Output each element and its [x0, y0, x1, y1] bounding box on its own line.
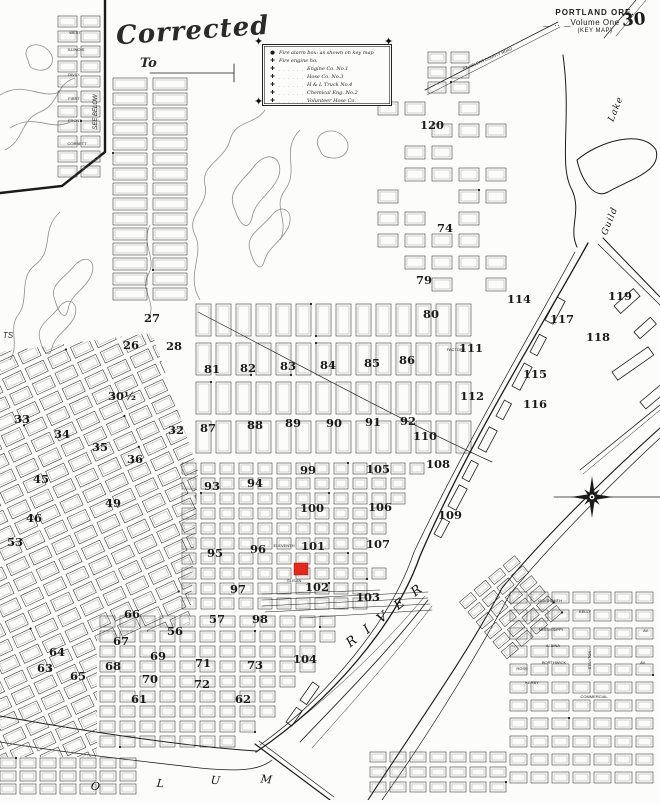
- city-block: [428, 52, 446, 63]
- city-block: [17, 758, 40, 777]
- city-block: [88, 612, 111, 631]
- city-block: [531, 664, 548, 675]
- city-block-inner: [222, 510, 232, 517]
- city-block: [229, 265, 252, 284]
- city-block: [148, 565, 171, 584]
- city-block-inner: [298, 525, 308, 532]
- district-number-34: 34: [54, 427, 70, 441]
- city-block: [251, 311, 274, 330]
- city-block-inner: [294, 520, 312, 534]
- city-block-inner: [0, 657, 17, 671]
- city-block: [451, 82, 469, 93]
- city-block-inner: [115, 125, 145, 133]
- city-block: [552, 736, 569, 747]
- city-block-inner: [41, 450, 59, 464]
- city-block-inner: [155, 170, 185, 178]
- city-block-inner: [231, 324, 249, 338]
- city-block-inner: [182, 648, 193, 655]
- city-block-inner: [336, 510, 346, 517]
- city-block: [276, 382, 291, 414]
- fire-alarm-box-dot: [137, 445, 140, 448]
- city-block: [233, 451, 256, 470]
- city-block: [280, 676, 295, 687]
- city-block: [470, 767, 486, 777]
- city-block-inner: [22, 786, 34, 792]
- city-block-inner: [279, 555, 289, 562]
- city-block: [296, 304, 311, 336]
- city-block: [160, 721, 175, 732]
- city-block-inner: [222, 555, 232, 562]
- city-block-inner: [53, 595, 71, 609]
- city-block-inner: [378, 306, 389, 334]
- city-block: [93, 328, 116, 347]
- city-block-inner: [122, 663, 133, 670]
- city-block: [216, 304, 231, 336]
- city-block-inner: [418, 384, 429, 412]
- city-block-inner: [151, 568, 169, 582]
- city-block-inner: [162, 708, 173, 715]
- city-block: [636, 592, 653, 603]
- city-block: [120, 661, 135, 672]
- city-block: [594, 646, 611, 657]
- city-block-inner: [617, 774, 630, 781]
- city-block: [220, 736, 235, 747]
- city-block: [206, 688, 229, 707]
- city-block-inner: [262, 708, 273, 715]
- city-block-inner: [4, 430, 22, 444]
- city-block-inner: [115, 260, 145, 268]
- city-block-inner: [185, 346, 203, 360]
- city-block-inner: [317, 480, 327, 487]
- fire-alarm-box-dot: [254, 731, 256, 733]
- city-block: [552, 754, 569, 765]
- city-block: [470, 782, 486, 792]
- city-block-inner: [148, 325, 166, 339]
- city-block-inner: [575, 756, 588, 763]
- city-block-inner: [220, 479, 238, 493]
- city-block: [376, 304, 391, 336]
- city-block-inner: [70, 512, 88, 526]
- city-block-inner: [322, 638, 340, 652]
- city-block: [120, 771, 136, 781]
- city-block: [63, 324, 86, 343]
- city-block: [100, 344, 123, 363]
- city-block: [370, 752, 386, 762]
- district-number-118: 118: [586, 330, 610, 344]
- city-block-inner: [256, 556, 274, 570]
- city-block-inner: [55, 481, 73, 495]
- city-block: [200, 706, 215, 717]
- city-block-inner: [380, 214, 396, 223]
- fire-alarm-box-dot: [328, 492, 330, 494]
- city-block-inner: [222, 693, 233, 700]
- city-block-inner: [336, 585, 346, 592]
- title-decor-dashes: — ·· —: [543, 22, 572, 30]
- city-block: [273, 301, 296, 320]
- city-block-inner: [488, 126, 504, 135]
- city-block-inner: [132, 408, 150, 422]
- city-block: [141, 550, 164, 569]
- city-block: [510, 754, 527, 765]
- city-block-inner: [617, 630, 630, 637]
- city-block-inner: [6, 729, 24, 743]
- city-block: [239, 523, 262, 542]
- city-block: [153, 258, 187, 270]
- city-block-inner: [96, 687, 114, 701]
- city-block: [111, 545, 134, 564]
- street-label: SEE BELOW: [93, 93, 99, 130]
- city-block: [10, 742, 33, 761]
- city-block: [81, 151, 100, 162]
- city-block-inner: [36, 321, 54, 335]
- city-block-inner: [155, 125, 185, 133]
- city-block-inner: [312, 380, 330, 394]
- city-block-inner: [412, 784, 424, 790]
- city-block: [58, 106, 77, 117]
- street-label: STANTON: [587, 651, 592, 670]
- city-block: [201, 559, 224, 578]
- city-block-inner: [23, 590, 41, 604]
- city-block-inner: [434, 236, 450, 245]
- city-block-inner: [209, 278, 227, 292]
- city-block-inner: [512, 594, 525, 601]
- city-block-inner: [222, 708, 233, 715]
- city-block: [113, 258, 147, 270]
- city-block-inner: [393, 465, 403, 472]
- city-block: [260, 691, 275, 702]
- city-block: [26, 716, 49, 735]
- city-block-inner: [317, 570, 327, 577]
- map-canvas[interactable]: 1207479808611411911711811111211511681828…: [0, 0, 660, 800]
- city-block-inner: [145, 496, 163, 510]
- city-block: [330, 481, 353, 500]
- city-block-inner: [102, 773, 114, 779]
- district-number-82: 82: [240, 361, 256, 375]
- district-number-65: 65: [70, 669, 86, 683]
- city-block: [276, 304, 291, 336]
- city-block: [220, 676, 235, 687]
- city-block-inner: [208, 691, 226, 705]
- city-block: [135, 478, 158, 497]
- city-block: [237, 224, 260, 243]
- compass-center-dot: [591, 496, 593, 498]
- city-block-inner: [596, 630, 609, 637]
- city-block-inner: [75, 641, 93, 655]
- city-block-inner: [222, 570, 232, 577]
- fire-engine-icon: ✚: [269, 66, 276, 74]
- city-block-inner: [165, 599, 183, 613]
- city-block-inner: [461, 236, 477, 245]
- city-block-inner: [260, 329, 278, 343]
- city-block: [436, 382, 451, 414]
- city-block-inner: [156, 697, 174, 711]
- contour-line: [317, 131, 348, 158]
- city-block-inner: [500, 581, 512, 592]
- city-block: [75, 468, 98, 487]
- city-block-inner: [372, 769, 384, 775]
- city-block: [594, 682, 611, 693]
- city-block: [11, 685, 34, 704]
- district-number-117: 117: [550, 312, 574, 326]
- city-block-inner: [262, 678, 273, 685]
- city-block: [0, 484, 23, 503]
- city-block-inner: [5, 373, 23, 387]
- district-number-90: 90: [326, 416, 342, 430]
- city-block: [10, 386, 33, 405]
- city-block: [296, 382, 311, 414]
- city-block: [636, 754, 653, 765]
- city-block-inner: [461, 214, 477, 223]
- city-block-inner: [488, 280, 504, 289]
- city-block-inner: [11, 445, 29, 459]
- city-block-inner: [512, 774, 525, 781]
- city-block: [573, 592, 590, 603]
- city-block-inner: [452, 754, 464, 760]
- city-block-inner: [83, 78, 98, 85]
- city-block-inner: [122, 678, 133, 685]
- city-block-inner: [200, 376, 218, 390]
- city-block: [80, 597, 103, 616]
- map-line: [198, 312, 492, 462]
- city-block: [96, 571, 119, 590]
- city-block: [40, 784, 56, 794]
- city-block-inner: [122, 738, 133, 745]
- city-block: [41, 334, 64, 353]
- city-block-inner: [62, 760, 74, 766]
- city-block-inner: [64, 440, 82, 454]
- city-block: [120, 706, 135, 717]
- city-block-inner: [13, 332, 31, 346]
- city-block-inner: [432, 784, 444, 790]
- fire-alarm-box-dot: [279, 323, 282, 326]
- city-block-inner: [71, 455, 89, 469]
- city-block-inner: [20, 760, 38, 774]
- city-block: [78, 710, 101, 729]
- city-block: [22, 530, 45, 549]
- city-block: [44, 520, 67, 539]
- district-number-71: 71: [195, 656, 211, 670]
- city-block: [70, 752, 93, 771]
- city-block: [100, 758, 116, 768]
- city-block: [450, 782, 466, 792]
- city-block: [116, 318, 139, 337]
- city-block-inner: [596, 666, 609, 673]
- street-label: FIRST: [68, 96, 80, 101]
- city-block: [200, 721, 215, 732]
- legend-leader-dots: . . . . . .: [279, 91, 304, 97]
- city-block: [573, 718, 590, 729]
- city-block: [174, 384, 197, 403]
- city-block: [490, 782, 506, 792]
- city-block: [200, 691, 215, 702]
- district-number-73: 73: [247, 658, 263, 672]
- city-block-inner: [283, 319, 301, 333]
- city-block-inner: [638, 612, 651, 619]
- city-block-inner: [149, 269, 167, 283]
- city-block: [256, 382, 271, 414]
- city-block: [573, 628, 590, 639]
- city-block-inner: [336, 540, 346, 547]
- city-block-inner: [218, 384, 229, 412]
- city-block-inner: [83, 33, 98, 40]
- city-block-inner: [102, 403, 120, 417]
- city-block: [3, 727, 26, 746]
- city-block-inner: [336, 465, 346, 472]
- city-block: [615, 682, 632, 693]
- city-block: [335, 610, 358, 629]
- city-block: [2, 371, 25, 390]
- city-block: [552, 718, 569, 729]
- city-block-inner: [155, 215, 185, 223]
- city-block: [336, 304, 351, 336]
- city-block-inner: [575, 738, 588, 745]
- district-number-46: 46: [26, 511, 42, 525]
- legend-leader-dots: . . . . . .: [279, 67, 304, 73]
- city-block-inner: [65, 383, 83, 397]
- city-block-inner: [407, 258, 423, 267]
- district-number-112: 112: [460, 389, 484, 403]
- city-block: [531, 736, 548, 747]
- city-block: [266, 285, 289, 304]
- city-block-inner: [237, 397, 255, 411]
- city-block-inner: [259, 386, 277, 400]
- city-block: [615, 646, 632, 657]
- city-block: [615, 592, 632, 603]
- city-block-inner: [98, 574, 116, 588]
- district-number-72: 72: [194, 677, 210, 691]
- city-block-inner: [336, 525, 346, 532]
- city-block: [356, 382, 371, 414]
- city-block-inner: [336, 495, 346, 502]
- city-block: [180, 676, 195, 687]
- city-block-inner: [461, 192, 477, 201]
- city-block: [41, 690, 64, 709]
- city-block-inner: [102, 723, 113, 730]
- city-block: [573, 754, 590, 765]
- district-number-87: 87: [200, 421, 216, 435]
- district-number-64: 64: [49, 645, 65, 659]
- city-block-inner: [492, 754, 504, 760]
- highlight-marker[interactable]: [294, 563, 308, 575]
- city-block: [594, 772, 611, 783]
- city-block: [99, 401, 122, 420]
- city-block: [636, 646, 653, 657]
- city-block-inner: [62, 786, 74, 792]
- city-block-inner: [242, 708, 253, 715]
- city-block-inner: [88, 729, 106, 743]
- city-block-inner: [241, 495, 251, 502]
- legend-leader-dots: . . . . . .: [279, 99, 304, 105]
- water-label: L: [155, 777, 165, 791]
- city-block: [531, 700, 548, 711]
- city-block-inner: [458, 306, 469, 334]
- city-block-inner: [217, 237, 235, 251]
- city-block-inner: [158, 583, 176, 597]
- fire-alarm-box-dot: [152, 269, 154, 271]
- district-number-35: 35: [92, 440, 108, 454]
- city-block-inner: [302, 633, 313, 640]
- district-number-33: 33: [14, 412, 30, 426]
- city-block: [636, 664, 653, 675]
- city-block-inner: [638, 594, 651, 601]
- city-block-inner: [203, 525, 213, 532]
- city-block-inner: [412, 769, 424, 775]
- city-block: [370, 782, 386, 792]
- city-block: [232, 508, 255, 527]
- city-block: [180, 691, 195, 702]
- city-block: [156, 581, 179, 600]
- city-block: [260, 631, 275, 642]
- city-block: [113, 288, 147, 300]
- city-block: [39, 391, 62, 410]
- city-block: [0, 771, 16, 781]
- district-number-79: 79: [416, 273, 432, 287]
- city-block: [107, 359, 130, 378]
- city-block-inner: [407, 170, 423, 179]
- city-block: [490, 767, 506, 777]
- city-block: [320, 616, 335, 627]
- city-block-inner: [58, 724, 76, 738]
- city-block-inner: [260, 495, 270, 502]
- street-label: GLISAN: [287, 578, 302, 583]
- city-block: [236, 382, 251, 414]
- city-block-inner: [324, 525, 342, 539]
- city-block-inner: [216, 294, 234, 308]
- city-block-inner: [115, 80, 145, 88]
- city-block-inner: [0, 342, 9, 356]
- city-block: [396, 304, 411, 336]
- compass-rose: [571, 476, 613, 518]
- city-block-inner: [50, 765, 68, 779]
- city-block-inner: [39, 564, 57, 578]
- city-block: [100, 616, 115, 627]
- city-block-inner: [15, 631, 33, 645]
- fire-engine-icon: ✚: [269, 58, 276, 66]
- city-block-inner: [47, 523, 65, 537]
- city-block-inner: [83, 18, 98, 25]
- city-block: [55, 365, 78, 384]
- city-block-inner: [355, 525, 365, 532]
- city-block-inner: [260, 510, 270, 517]
- fire-engine-icon: ✚: [269, 74, 276, 82]
- city-block-inner: [114, 548, 132, 562]
- city-block: [636, 610, 653, 621]
- city-block: [153, 273, 187, 285]
- city-block: [214, 291, 237, 310]
- city-block-inner: [238, 384, 249, 412]
- city-block: [76, 411, 99, 430]
- city-block-inner: [262, 648, 273, 655]
- water-label: M: [259, 772, 273, 786]
- city-block-inner: [162, 723, 173, 730]
- city-block-inner: [355, 540, 365, 547]
- city-block-inner: [238, 340, 256, 354]
- city-block: [531, 772, 548, 783]
- city-block: [220, 706, 235, 717]
- city-block-inner: [638, 648, 651, 655]
- city-block-inner: [378, 384, 389, 412]
- city-block: [118, 560, 141, 579]
- city-block: [416, 343, 431, 375]
- city-block-inner: [434, 258, 450, 267]
- city-block-inner: [229, 381, 247, 395]
- district-number-81: 81: [204, 362, 220, 376]
- city-block: [220, 691, 235, 702]
- city-block: [327, 594, 350, 613]
- legend-item-label: Volunteer Hose Co.: [307, 98, 356, 105]
- city-block-inner: [510, 623, 522, 634]
- city-block-inner: [160, 470, 178, 484]
